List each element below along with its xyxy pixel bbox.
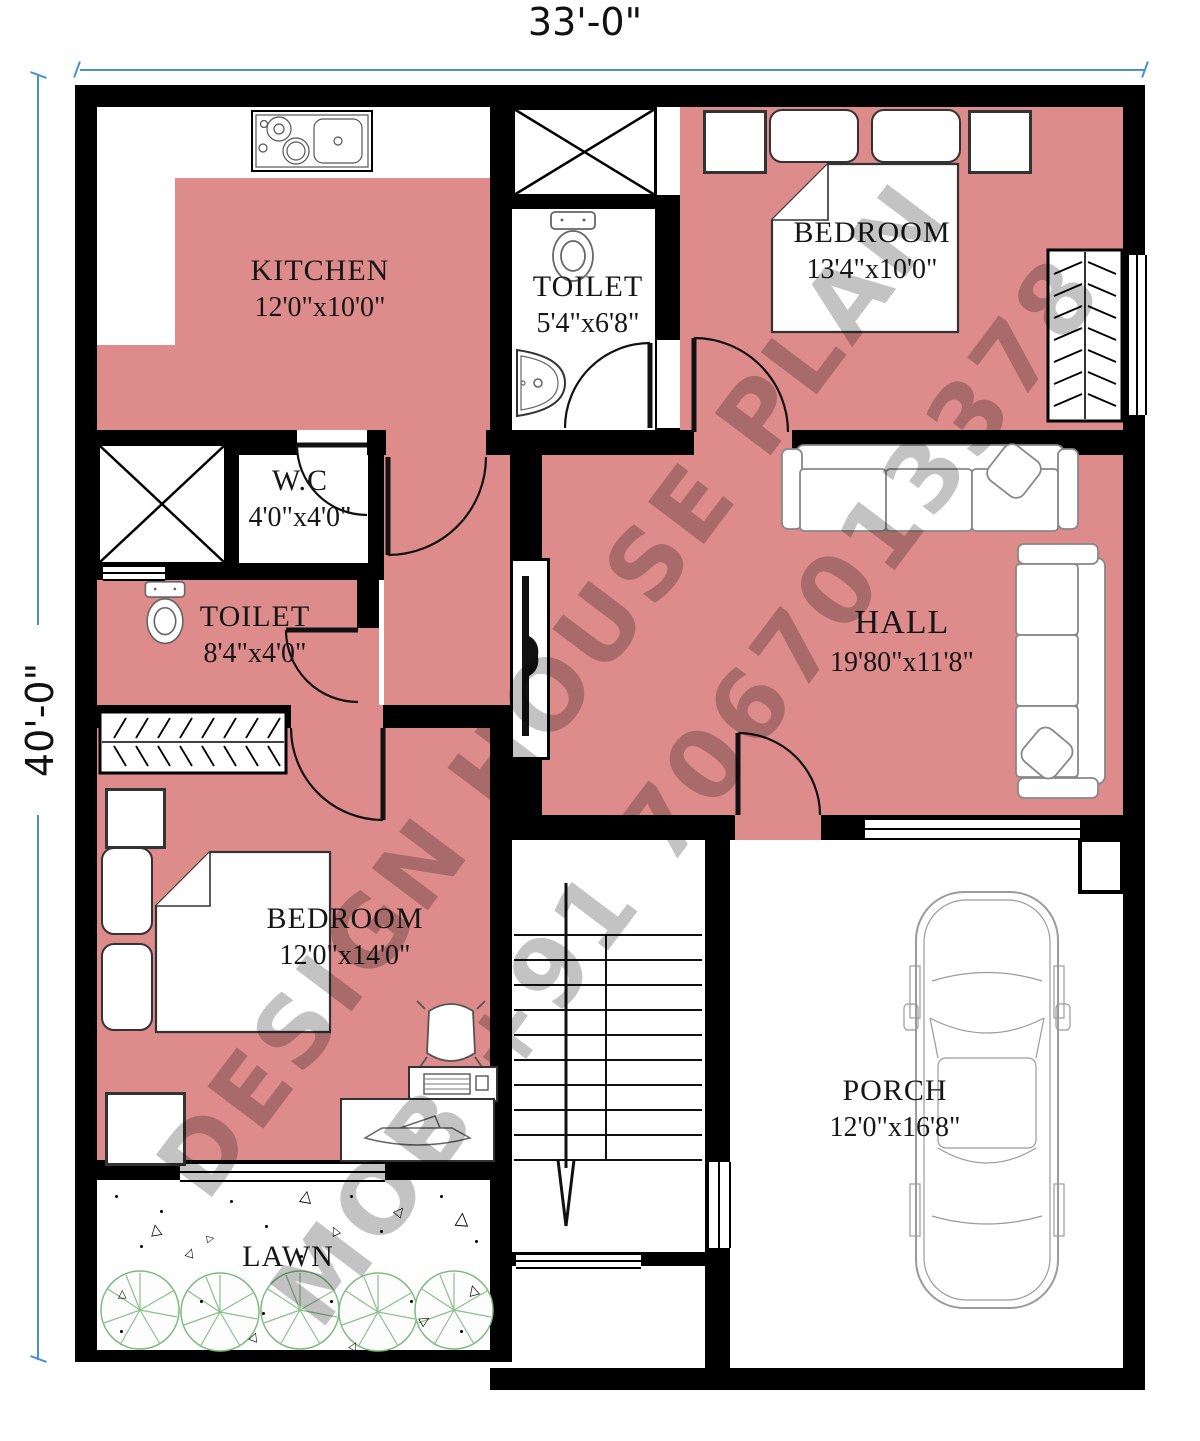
dimension-line-top: [80, 69, 1145, 71]
side-table: [105, 1092, 186, 1166]
grass-dot: [475, 1240, 478, 1243]
grass-triangle-icon: △: [299, 1187, 314, 1205]
grass-triangle-icon: △: [149, 1221, 163, 1238]
door-wc: [293, 441, 371, 519]
window: [516, 1253, 641, 1269]
bed-icon: [98, 842, 336, 1038]
bed-icon: [762, 108, 968, 336]
door-toilet1: [560, 338, 655, 433]
wall: [225, 443, 239, 565]
tree-icon: [258, 1268, 342, 1352]
grass-triangle-icon: △: [204, 1234, 215, 1243]
grass-triangle-icon: △: [392, 1203, 408, 1219]
grass-dot: [140, 1245, 143, 1248]
floor-plan: △ △ △ △ △ △ △ △ △ △ △ △ KITCHEN 12'0"x10…: [0, 0, 1200, 1441]
door-bedroom1: [690, 334, 792, 436]
side-table: [105, 788, 166, 849]
tv-icon: [512, 562, 542, 750]
grass-dot: [440, 1195, 443, 1198]
door-opening: [657, 340, 680, 428]
grass-dot: [460, 1330, 463, 1333]
door-opening: [386, 430, 486, 455]
door-bedroom2: [287, 724, 387, 824]
grass-dot: [265, 1225, 268, 1228]
grass-dot: [262, 1312, 265, 1315]
window: [865, 818, 1080, 840]
wardrobe-icon: [98, 710, 288, 776]
grass-triangle-icon: △: [118, 1288, 126, 1299]
grass-dot: [115, 1195, 118, 1198]
wall: [510, 455, 542, 560]
grass-triangle-icon: △: [454, 1209, 469, 1228]
sofa-icon: [1012, 542, 1107, 800]
grass-dot: [120, 1330, 123, 1333]
wall: [705, 840, 730, 1368]
grass-dot: [380, 1230, 383, 1233]
dimension-width-label: 33'-0": [490, 0, 680, 44]
kitchen-platform-icon: [251, 110, 373, 172]
side-table: [968, 110, 1032, 174]
tree-icon: [336, 1270, 420, 1354]
wardrobe-icon: [1046, 248, 1124, 423]
window: [707, 1162, 731, 1248]
door-toilet2: [282, 626, 362, 706]
door-main-entrance: [733, 728, 825, 820]
wall: [510, 750, 542, 818]
toilet-seat-icon: [545, 210, 601, 286]
grass-triangle-icon: △: [184, 1245, 196, 1259]
wall: [490, 107, 512, 432]
grass-dot: [300, 1255, 303, 1258]
side-table: [703, 110, 767, 174]
grass-dot: [160, 1210, 163, 1213]
shaft-cross-icon: [97, 443, 227, 565]
wall: [490, 705, 512, 1362]
car-icon: [902, 886, 1072, 1316]
dimension-height-label: 40'-0": [18, 625, 62, 815]
toilet-seat-icon: [140, 580, 190, 648]
grass-dot: [330, 1300, 333, 1303]
staircase: [510, 838, 705, 1250]
window: [180, 1162, 385, 1182]
grass-dot: [410, 1300, 413, 1303]
wall: [490, 1368, 1145, 1390]
wash-basin-icon: [511, 346, 567, 420]
grass-dot: [230, 1200, 233, 1203]
porch-step: [1078, 838, 1124, 894]
wall: [75, 85, 97, 1362]
tree-icon: [412, 1268, 496, 1352]
tree-icon: [98, 1268, 182, 1352]
door-kitchen: [384, 453, 490, 559]
grass-triangle-icon: △: [328, 1223, 341, 1238]
wall: [505, 195, 680, 209]
sofa-icon: [780, 443, 1080, 535]
window: [1127, 255, 1147, 415]
grass-dot: [200, 1300, 203, 1303]
wall: [75, 85, 1145, 107]
shaft-cross-icon: [512, 107, 657, 197]
chair-icon: [415, 995, 487, 1073]
kitchen-counter-left: [97, 107, 175, 345]
grass-dot: [350, 1195, 353, 1198]
window: [103, 565, 165, 581]
dresser-icon: [340, 1098, 495, 1162]
stair-direction-arrow: [558, 1160, 574, 1226]
desk-keyboard-icon: [408, 1066, 498, 1102]
